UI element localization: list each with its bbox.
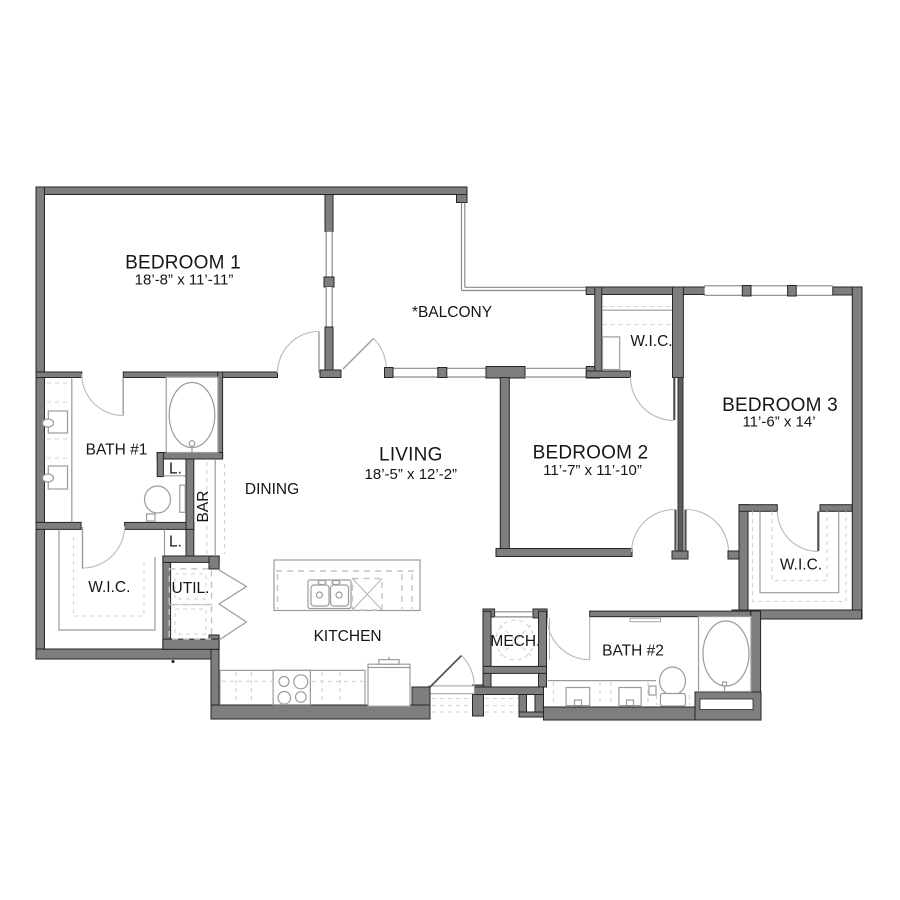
svg-text:BATH #1: BATH #1 xyxy=(86,441,148,458)
svg-text:18’-8” x 11’-11”: 18’-8” x 11’-11” xyxy=(135,271,234,288)
svg-text:18’-5” x 12’-2”: 18’-5” x 12’-2” xyxy=(365,466,458,483)
svg-text:UTIL.: UTIL. xyxy=(172,580,210,597)
svg-text:DINING: DINING xyxy=(245,481,299,498)
svg-text:W.I.C.: W.I.C. xyxy=(780,556,822,573)
svg-text:W.I.C.: W.I.C. xyxy=(88,579,130,596)
svg-text:BEDROOM 2: BEDROOM 2 xyxy=(533,443,649,464)
svg-text:KITCHEN: KITCHEN xyxy=(314,628,382,645)
svg-text:11’-6” x 14’: 11’-6” x 14’ xyxy=(742,413,815,430)
svg-text:BATH #2: BATH #2 xyxy=(602,642,664,659)
svg-text:LIVING: LIVING xyxy=(379,445,443,466)
svg-text:L.: L. xyxy=(169,533,182,550)
svg-text:*BALCONY: *BALCONY xyxy=(412,304,492,321)
svg-text:11’-7” x 11’-10”: 11’-7” x 11’-10” xyxy=(543,462,642,479)
svg-text:L.: L. xyxy=(169,460,182,477)
svg-text:W.I.C.: W.I.C. xyxy=(630,333,672,350)
svg-text:MECH.: MECH. xyxy=(490,633,540,650)
svg-text:BAR: BAR xyxy=(195,491,212,523)
